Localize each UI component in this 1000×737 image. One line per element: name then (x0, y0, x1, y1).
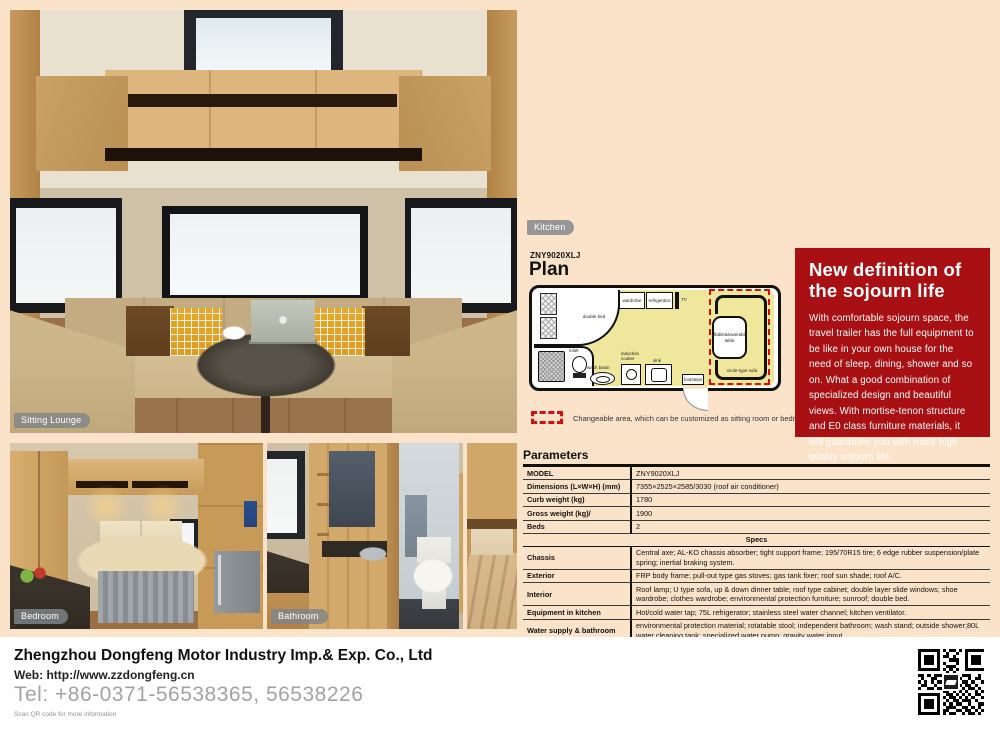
plan-label-wash-basin: wash basin (587, 365, 610, 370)
plan-toilet-base (573, 373, 586, 378)
plan-shower-icon (538, 351, 565, 382)
qr-note: Scan QR code for more information (14, 711, 116, 718)
photo-bed-detail (467, 443, 517, 629)
plan-label-tv: TV (681, 297, 687, 302)
plan-liftable-table: liftable&lowerable table (712, 316, 747, 359)
plan-toilet-icon (572, 356, 587, 373)
sitting-lounge-badge: Sitting Lounge (14, 413, 90, 428)
photo-sitting-lounge: Sitting Lounge (10, 10, 517, 433)
table-row: Equipment in kitchenHot/cold water tap; … (523, 606, 990, 619)
plan-induction-cooker-icon (621, 364, 641, 385)
plan-wardrobe: wardrobe (619, 292, 645, 309)
table-row: InteriorRoof lamp; U type sofa, up & dow… (523, 583, 990, 606)
table-row: Gross weight (kg)/1900 (523, 507, 990, 520)
plan-door-swing (683, 389, 708, 411)
plan-label-sink: sink (653, 358, 661, 363)
qr-code (916, 647, 986, 717)
qr-logo (942, 673, 960, 691)
plan-legend-swatch (531, 411, 563, 424)
table-row: ExteriorFRP body frame; pull-out type ga… (523, 569, 990, 582)
photo-bedroom: Bedroom (10, 443, 263, 629)
table-row: ChassisCentral axe; AL-KO chassis absorb… (523, 546, 990, 569)
plan-pillow-icon (540, 317, 557, 339)
plan-legend-text: Changeable area, which can be customized… (573, 414, 812, 423)
kitchen-badge: Kitchen (527, 220, 574, 235)
photo-kitchen: Kitchen (523, 10, 990, 240)
table-row: Dimensions (L×W×H) (mm)7355×2525×2585/30… (523, 480, 990, 493)
phone-numbers: Tel: +86-0371-56538365, 56538226 (14, 683, 363, 707)
table-row: MODELZNY9020XLJ (523, 466, 990, 480)
plan-tv-icon (675, 292, 679, 309)
promo-title: New definition of the sojourn life (809, 260, 976, 302)
photo-bathroom: Bathroom (267, 443, 463, 629)
parameters-heading: Parameters (523, 448, 588, 462)
company-name: Zhengzhou Dongfeng Motor Industry Imp.& … (14, 647, 432, 665)
footer: Zhengzhou Dongfeng Motor Industry Imp.& … (0, 637, 1000, 737)
brochure-page: Sitting Lounge Kitchen Bedroom Bathroom … (0, 0, 1000, 737)
plan-title: Plan (529, 259, 569, 281)
plan-sink-icon (645, 364, 672, 385)
plan-label-toilet: toilet (569, 348, 579, 353)
plan-refrigerator: refrigerator (646, 292, 673, 309)
plan-wash-basin-icon (590, 372, 615, 385)
plan-label-double-bed: double bed (568, 314, 620, 319)
plan-pillow-icon (540, 293, 557, 315)
plan-label-circle-sofa: circle-type sofa (715, 368, 769, 373)
table-row: Beds2 (523, 520, 990, 533)
table-row: Curb weight (kg)1780 (523, 493, 990, 506)
website: Web: http://www.zzdongfeng.cn (14, 668, 195, 682)
plan-label-induction-cooker: induction cooker (621, 351, 649, 361)
promo-box: New definition of the sojourn life With … (795, 248, 990, 437)
bedroom-badge: Bedroom (14, 609, 68, 624)
table-row-specs-header: Specs (523, 534, 990, 546)
floor-plan: double bed wardrobe refrigerator TV lift… (529, 285, 781, 391)
bathroom-badge: Bathroom (271, 609, 328, 624)
promo-body: With comfortable sojourn space, the trav… (809, 311, 976, 466)
plan-footsteps: footsteps (682, 374, 704, 385)
parameters-table: MODELZNY9020XLJ Dimensions (L×W×H) (mm)7… (523, 464, 990, 658)
